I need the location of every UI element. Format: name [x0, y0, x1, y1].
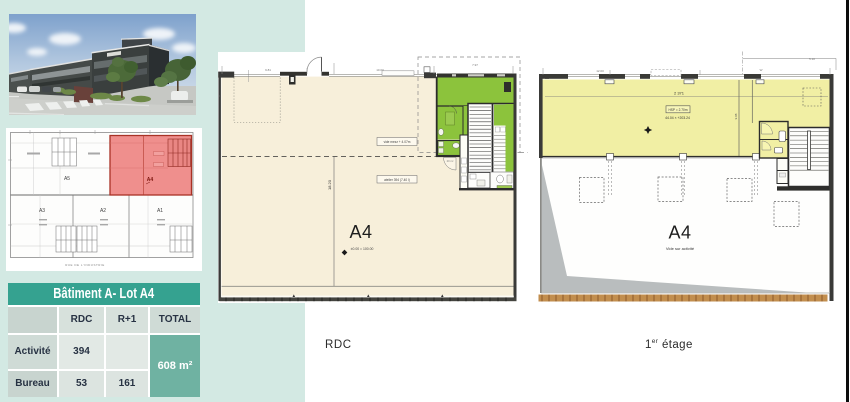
svg-text:W: W	[760, 68, 763, 72]
svg-text:2 371: 2 371	[674, 91, 685, 96]
svg-text:12.00: 12.00	[596, 69, 604, 73]
svg-text:RUE DE L'INDUSTRIE: RUE DE L'INDUSTRIE	[65, 263, 105, 267]
svg-text:atelier 394 (7.40 l): atelier 394 (7.40 l)	[384, 178, 410, 182]
svg-text:9.08: 9.08	[734, 113, 738, 119]
svg-text:A1: A1	[157, 208, 163, 214]
svg-text:10.00: 10.00	[376, 68, 384, 72]
svg-text:44.04 × +203.24: 44.04 × +203.24	[665, 116, 690, 120]
svg-text:A4: A4	[349, 222, 372, 242]
svg-text:A4: A4	[668, 223, 691, 243]
svg-text:HSP = 2.70m: HSP = 2.70m	[669, 108, 688, 112]
svg-text:9.81: 9.81	[265, 68, 271, 72]
svg-text:±0.00 = 100.00: ±0.00 = 100.00	[351, 247, 374, 251]
svg-text:20 m²: 20 m²	[447, 159, 454, 163]
svg-text:A2: A2	[100, 208, 106, 214]
svg-text:A4: A4	[147, 177, 154, 183]
svg-text:vide mezz + 4.07m: vide mezz + 4.07m	[384, 140, 411, 144]
svg-text:Vide sur activité: Vide sur activité	[666, 246, 695, 251]
svg-text:18.20: 18.20	[327, 179, 332, 190]
svg-text:7.97: 7.97	[472, 63, 478, 67]
svg-text:A3: A3	[39, 208, 45, 214]
svg-text:A5: A5	[64, 176, 70, 182]
svg-text:5.10: 5.10	[809, 57, 815, 61]
